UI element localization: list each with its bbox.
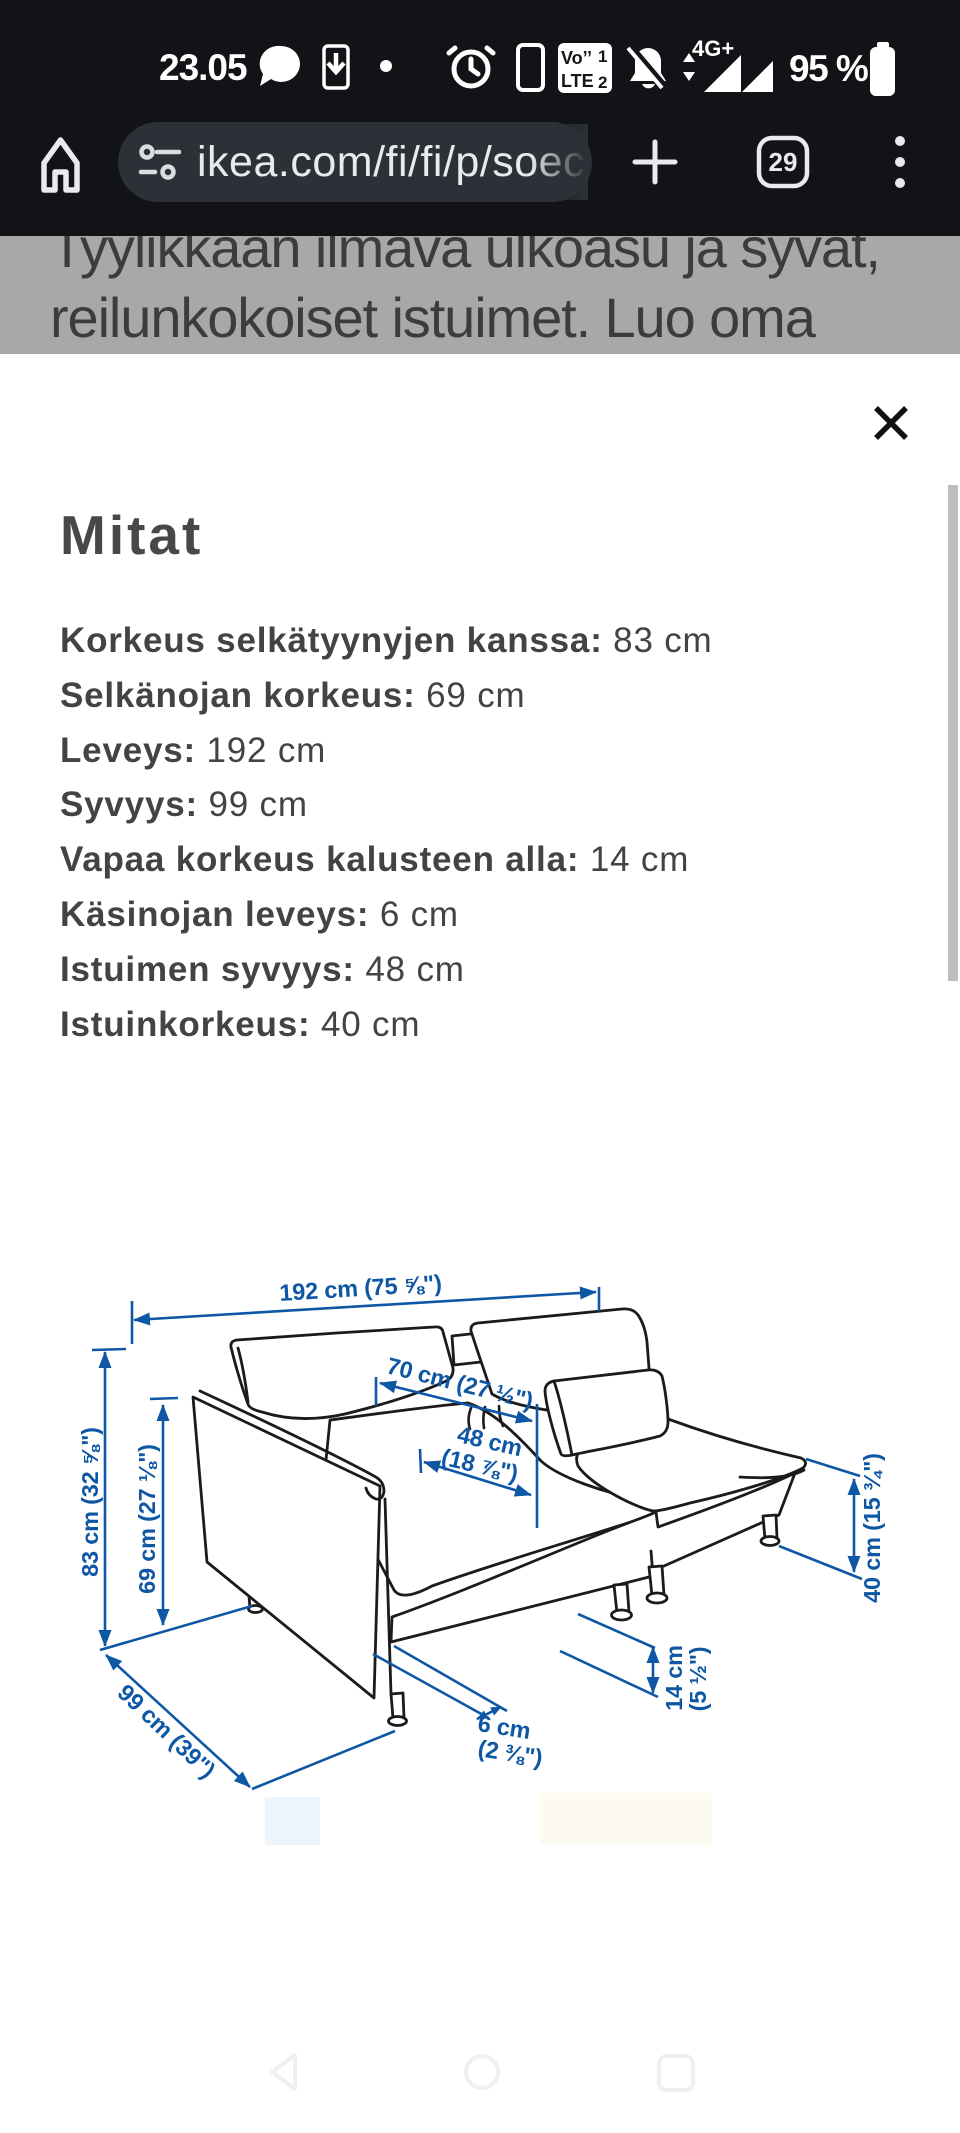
svg-text:LTE: LTE [561, 71, 594, 91]
svg-text:95 %: 95 % [789, 48, 868, 89]
svg-text:(2 ⅜"): (2 ⅜") [476, 1735, 544, 1771]
svg-text:99 cm (39"): 99 cm (39") [113, 1679, 221, 1783]
svg-text:2: 2 [598, 73, 607, 92]
svg-text:ikea.com/fi/fi/p/soec: ikea.com/fi/fi/p/soec [197, 138, 585, 186]
svg-text:29: 29 [769, 147, 798, 177]
svg-text:192 cm (75 ⅝"): 192 cm (75 ⅝") [279, 1270, 443, 1306]
svg-text:4G+: 4G+ [692, 36, 734, 61]
svg-text:40 cm (15 ¾"): 40 cm (15 ¾") [859, 1453, 885, 1603]
svg-text:(5 ½"): (5 ½") [685, 1647, 711, 1712]
svg-text:14 cm: 14 cm [661, 1645, 687, 1711]
svg-text:83 cm (32 ⅝"): 83 cm (32 ⅝") [77, 1427, 103, 1577]
svg-text:Vo’’: Vo’’ [561, 48, 592, 68]
svg-text:69 cm (27 ⅛"): 69 cm (27 ⅛") [134, 1444, 160, 1594]
svg-text:1: 1 [598, 47, 607, 66]
